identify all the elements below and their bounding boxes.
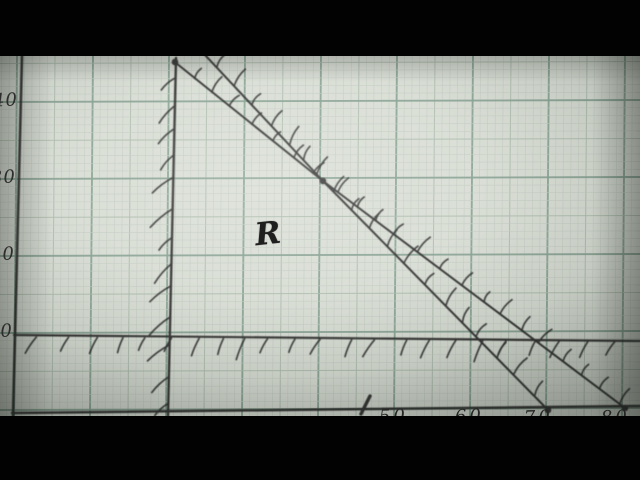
video-frame: 40 30 20 10 50 60 70 80 R	[0, 0, 640, 480]
letterbox-bottom-bar	[0, 416, 640, 480]
photo-vignette	[0, 56, 640, 416]
graph-paper-photo	[0, 0, 640, 480]
letterbox-top-bar	[0, 0, 640, 56]
